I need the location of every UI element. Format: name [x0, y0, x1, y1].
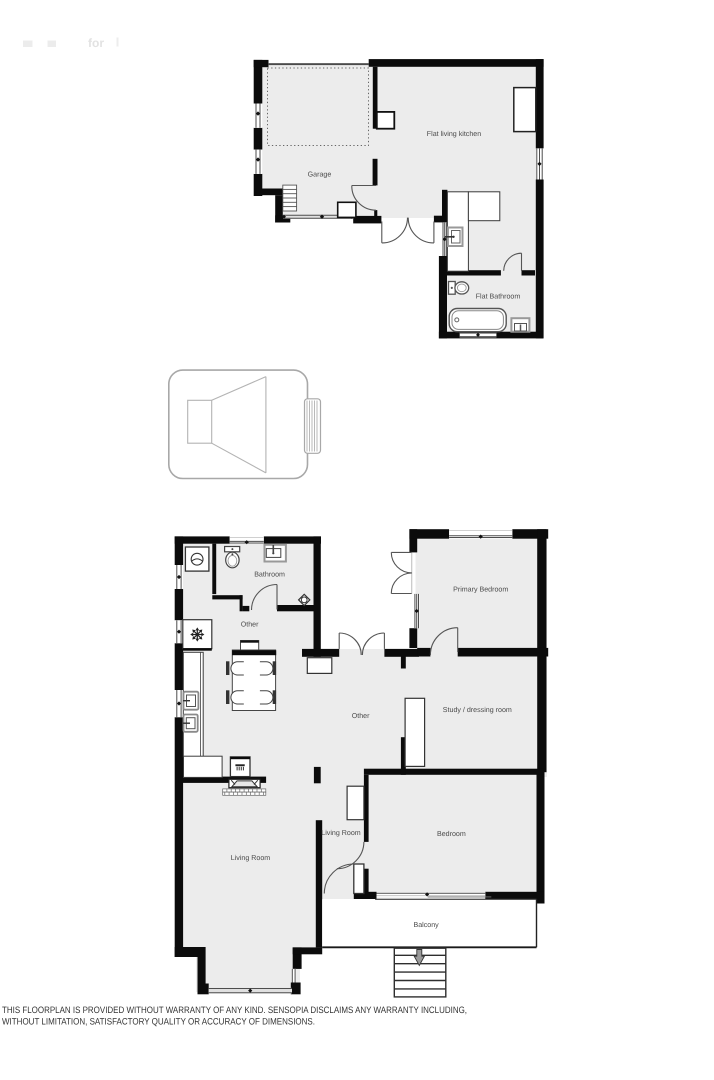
svg-text:for: for: [88, 36, 104, 50]
svg-text:Balcony: Balcony: [413, 921, 439, 929]
svg-text:Other: Other: [241, 621, 259, 629]
svg-text:Study / dressing room: Study / dressing room: [443, 706, 512, 714]
svg-text:WITHOUT LIMITATION, SATISFACTO: WITHOUT LIMITATION, SATISFACTORY QUALITY…: [2, 1016, 315, 1026]
svg-text:Living Room: Living Room: [231, 854, 271, 862]
svg-text:Garage: Garage: [308, 171, 332, 179]
svg-text:Primary Bedroom: Primary Bedroom: [453, 586, 508, 594]
svg-text:Bathroom: Bathroom: [254, 571, 285, 579]
svg-text:Bedroom: Bedroom: [437, 830, 466, 838]
svg-text:Living Room: Living Room: [321, 829, 361, 837]
svg-text:THIS FLOORPLAN IS PROVIDED WIT: THIS FLOORPLAN IS PROVIDED WITHOUT WARRA…: [2, 1005, 467, 1015]
svg-text:Other: Other: [352, 712, 370, 720]
svg-text:Flat Bathroom: Flat Bathroom: [476, 293, 521, 301]
svg-text:Flat living kitchen: Flat living kitchen: [427, 130, 481, 138]
